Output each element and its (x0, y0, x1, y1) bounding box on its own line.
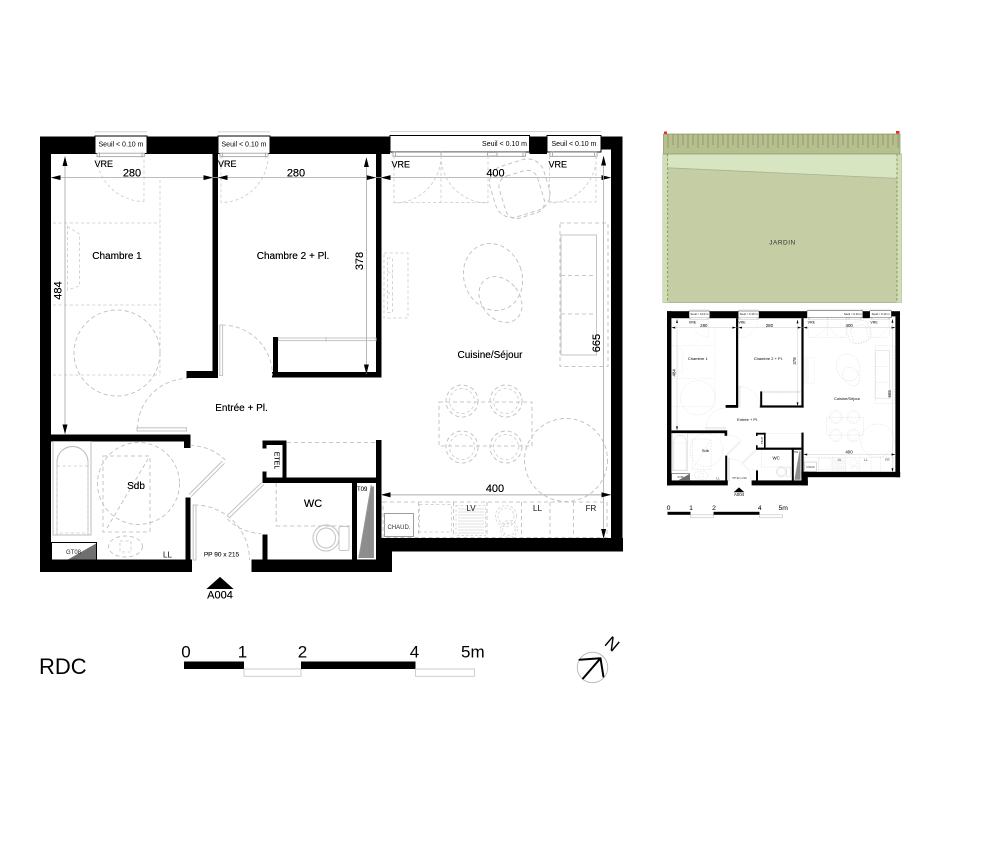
svg-text:0: 0 (667, 505, 671, 512)
svg-text:1: 1 (238, 643, 247, 662)
svg-text:RDC: RDC (39, 654, 87, 679)
svg-text:5m: 5m (779, 505, 789, 512)
svg-text:2: 2 (298, 643, 307, 662)
svg-text:0: 0 (181, 643, 190, 662)
svg-text:2: 2 (712, 505, 716, 512)
svg-text:5m: 5m (461, 643, 485, 662)
svg-text:4: 4 (410, 643, 419, 662)
svg-text:1: 1 (689, 505, 693, 512)
svg-text:JARDIN: JARDIN (769, 240, 795, 247)
svg-text:4: 4 (758, 505, 762, 512)
